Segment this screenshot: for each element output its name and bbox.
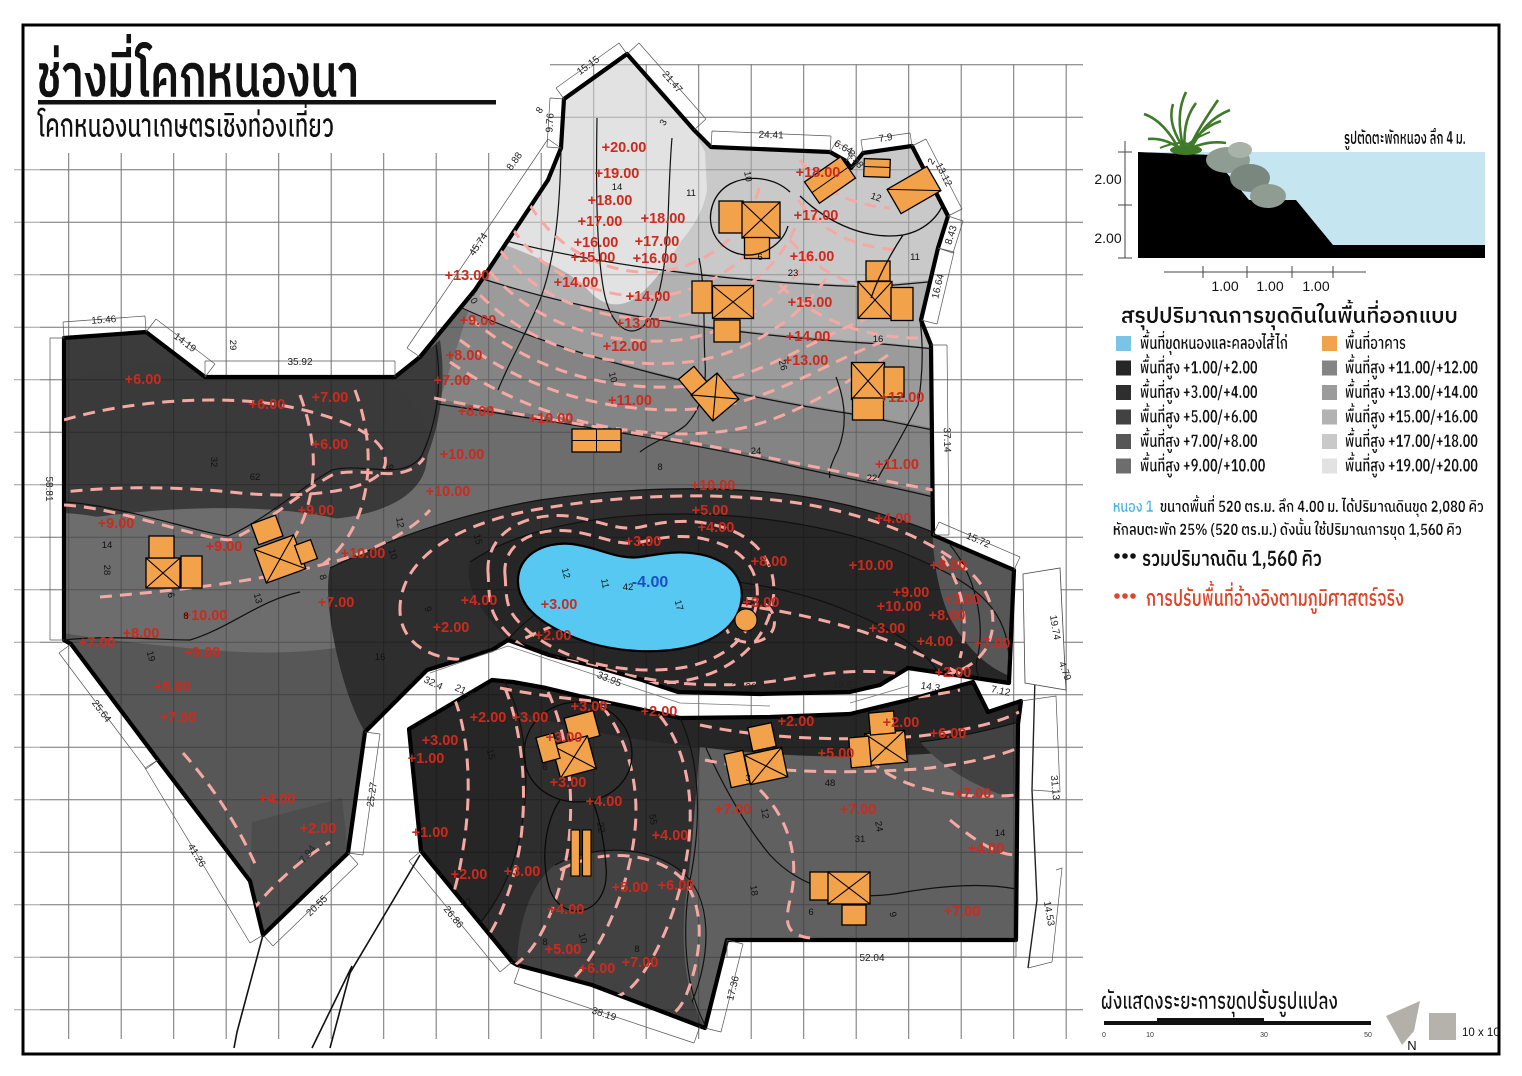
svg-text:+7.00: +7.00 [160,710,197,726]
svg-text:11: 11 [686,188,696,199]
svg-text:+2.00: +2.00 [883,715,920,731]
svg-text:+3.00: +3.00 [743,595,780,611]
svg-text:+4.00: +4.00 [917,634,954,650]
svg-text:+3.00: +3.00 [869,621,906,637]
svg-text:12: 12 [393,516,406,528]
svg-text:+7.00: +7.00 [312,390,349,406]
svg-text:+16.00: +16.00 [574,235,619,251]
svg-text:+7.00: +7.00 [318,595,355,611]
svg-text:58.81: 58.81 [43,476,54,501]
svg-text:+8.00: +8.00 [930,558,967,574]
svg-text:+9.00: +9.00 [206,539,243,555]
svg-text:+3.00: +3.00 [625,534,662,550]
svg-text:9.76: 9.76 [544,112,556,133]
svg-text:3: 3 [745,773,750,784]
svg-text:+17.00: +17.00 [794,208,839,224]
svg-text:+13.00: +13.00 [616,316,661,332]
svg-text:37.14: 37.14 [941,427,952,453]
svg-text:24: 24 [872,820,885,832]
svg-text:+3.00: +3.00 [944,592,981,608]
svg-text:14: 14 [995,828,1006,839]
svg-text:+9.00: +9.00 [893,585,930,601]
svg-text:30: 30 [1260,1032,1268,1039]
svg-text:+2.00: +2.00 [433,620,470,636]
svg-text:+10.00: +10.00 [529,411,574,427]
svg-text:+3.00: +3.00 [546,730,583,746]
svg-text:29: 29 [227,340,238,351]
svg-text:28: 28 [101,565,112,576]
svg-text:6: 6 [542,762,547,773]
svg-text:+6.00: +6.00 [658,878,695,894]
svg-text:8: 8 [183,611,188,622]
svg-text:+4.00: +4.00 [259,791,296,807]
svg-text:+1.00: +1.00 [408,751,445,767]
svg-text:31: 31 [855,834,866,845]
svg-text:10: 10 [460,897,471,908]
svg-text:35.92: 35.92 [287,357,312,368]
svg-text:+16.00: +16.00 [790,249,835,265]
svg-text:+3.00: +3.00 [504,864,541,880]
svg-text:+4.00: +4.00 [968,841,1005,857]
svg-text:+4.00: +4.00 [698,520,735,536]
svg-text:48: 48 [825,778,836,789]
svg-text:+6.00: +6.00 [579,961,616,977]
svg-text:+8.00: +8.00 [929,608,966,624]
svg-text:32: 32 [208,457,219,468]
svg-text:+10.00: +10.00 [341,546,386,562]
svg-text:+4.00: +4.00 [548,902,585,918]
svg-text:+16.00: +16.00 [633,251,678,267]
svg-text:+8.00: +8.00 [446,348,483,364]
svg-text:+6.00: +6.00 [312,437,349,453]
svg-text:+10.00: +10.00 [877,599,922,615]
svg-text:+20.00: +20.00 [602,140,647,156]
svg-text:+11.00: +11.00 [875,457,919,473]
svg-text:+2.00: +2.00 [535,628,572,644]
svg-text:+7.00: +7.00 [622,955,659,971]
svg-text:1.00: 1.00 [1302,278,1329,294]
svg-text:+10.00: +10.00 [440,447,485,463]
svg-text:+13.00: +13.00 [445,268,490,284]
svg-text:10 x 10: 10 x 10 [1462,1027,1500,1039]
svg-text:+3.00: +3.00 [550,775,587,791]
svg-text:+12.00: +12.00 [603,339,648,355]
svg-text:2.00: 2.00 [1094,171,1121,187]
svg-text:24: 24 [751,446,762,457]
svg-text:62: 62 [250,472,261,483]
svg-text:2.00: 2.00 [1094,230,1121,246]
svg-text:16: 16 [873,334,884,345]
svg-text:6: 6 [757,252,762,263]
svg-text:14: 14 [612,182,623,193]
svg-text:+8.00: +8.00 [123,626,160,642]
svg-text:+5.00: +5.00 [818,746,855,762]
svg-text:+4.00: +4.00 [586,794,623,810]
svg-text:+5.00: +5.00 [692,503,729,519]
svg-text:11: 11 [910,252,920,263]
svg-text:1.00: 1.00 [1256,278,1283,294]
svg-text:+6.00: +6.00 [930,726,967,742]
svg-text:+14.00: +14.00 [554,275,599,291]
svg-text:+18.00: +18.00 [641,211,686,227]
svg-text:+8.00: +8.00 [751,554,788,570]
svg-text:+4.00: +4.00 [875,511,912,527]
svg-text:+2.00: +2.00 [451,867,488,883]
svg-text:+4.00: +4.00 [461,593,498,609]
svg-text:23: 23 [788,268,799,279]
svg-text:+14.00: +14.00 [786,329,831,345]
svg-text:+14.00: +14.00 [626,289,671,305]
svg-text:+11.00: +11.00 [608,393,652,409]
svg-text:+3.00: +3.00 [571,699,608,715]
svg-text:+10.00: +10.00 [691,478,736,494]
svg-text:18: 18 [747,884,760,896]
svg-text:+10.00: +10.00 [849,558,894,574]
svg-text:52.04: 52.04 [859,953,884,964]
svg-text:+7.00: +7.00 [715,802,752,818]
svg-text:8: 8 [542,937,547,948]
svg-text:+9.00: +9.00 [98,516,135,532]
svg-text:+8.00: +8.00 [154,679,191,695]
svg-text:+3.00: +3.00 [422,733,459,749]
svg-text:24.38: 24.38 [731,682,757,694]
svg-text:+5.00: +5.00 [545,942,582,958]
svg-text:0: 0 [1102,1032,1106,1039]
svg-text:6: 6 [808,907,813,918]
svg-text:50: 50 [1364,1032,1372,1039]
svg-text:+9.00: +9.00 [460,313,497,329]
svg-text:-4.00: -4.00 [632,574,669,591]
svg-text:+9.00: +9.00 [298,503,335,519]
svg-text:+18.00: +18.00 [796,165,841,181]
svg-text:+7.00: +7.00 [944,904,981,920]
svg-text:+2.00: +2.00 [935,665,972,681]
svg-text:+18.00: +18.00 [588,193,633,209]
svg-text:+12.00: +12.00 [880,390,925,406]
svg-text:+17.00: +17.00 [635,234,680,250]
svg-text:+1.00: +1.00 [412,825,449,841]
svg-text:+6.00: +6.00 [125,372,162,388]
svg-text:10: 10 [1146,1032,1154,1039]
svg-text:8: 8 [634,944,639,955]
svg-text:+10.00: +10.00 [183,608,228,624]
svg-text:+7.00: +7.00 [434,373,471,389]
svg-text:+7.00: +7.00 [955,786,992,802]
svg-text:+8.00: +8.00 [458,404,495,420]
svg-text:7.9: 7.9 [878,132,894,145]
svg-text:+10.00: +10.00 [426,484,471,500]
svg-text:+13.00: +13.00 [784,353,829,369]
svg-text:+2.00: +2.00 [470,710,507,726]
svg-text:22: 22 [867,473,878,484]
svg-text:14: 14 [102,540,113,551]
svg-text:+17.00: +17.00 [578,214,623,230]
svg-text:12: 12 [758,807,771,819]
svg-text:+19.00: +19.00 [595,166,640,182]
svg-text:+6.00: +6.00 [249,397,286,413]
svg-text:22: 22 [594,821,607,833]
svg-text:+7.00: +7.00 [840,802,877,818]
svg-text:1.00: 1.00 [1211,278,1238,294]
svg-text:+15.00: +15.00 [788,295,833,311]
svg-text:24.41: 24.41 [758,130,784,142]
svg-text:+7.00: +7.00 [974,636,1011,652]
svg-text:10: 10 [741,170,754,182]
svg-text:+15.00: +15.00 [571,250,616,266]
svg-text:+2.00: +2.00 [300,821,337,837]
svg-text:N: N [1407,1038,1416,1053]
svg-text:11: 11 [598,578,611,590]
svg-text:+3.00: +3.00 [541,597,578,613]
svg-text:8: 8 [657,462,662,473]
svg-text:15.46: 15.46 [91,314,117,327]
svg-text:+4.00: +4.00 [652,828,689,844]
svg-text:55: 55 [646,813,659,825]
svg-text:+7.00: +7.00 [79,635,116,651]
svg-text:42: 42 [623,582,634,593]
svg-text:+5.00: +5.00 [612,880,649,896]
svg-text:19.63: 19.63 [832,680,858,692]
svg-text:+9.00: +9.00 [184,645,221,661]
svg-text:+2.00: +2.00 [778,714,815,730]
svg-text:+3.00: +3.00 [512,710,549,726]
svg-text:16: 16 [375,652,386,663]
svg-text:+2.00: +2.00 [641,704,678,720]
